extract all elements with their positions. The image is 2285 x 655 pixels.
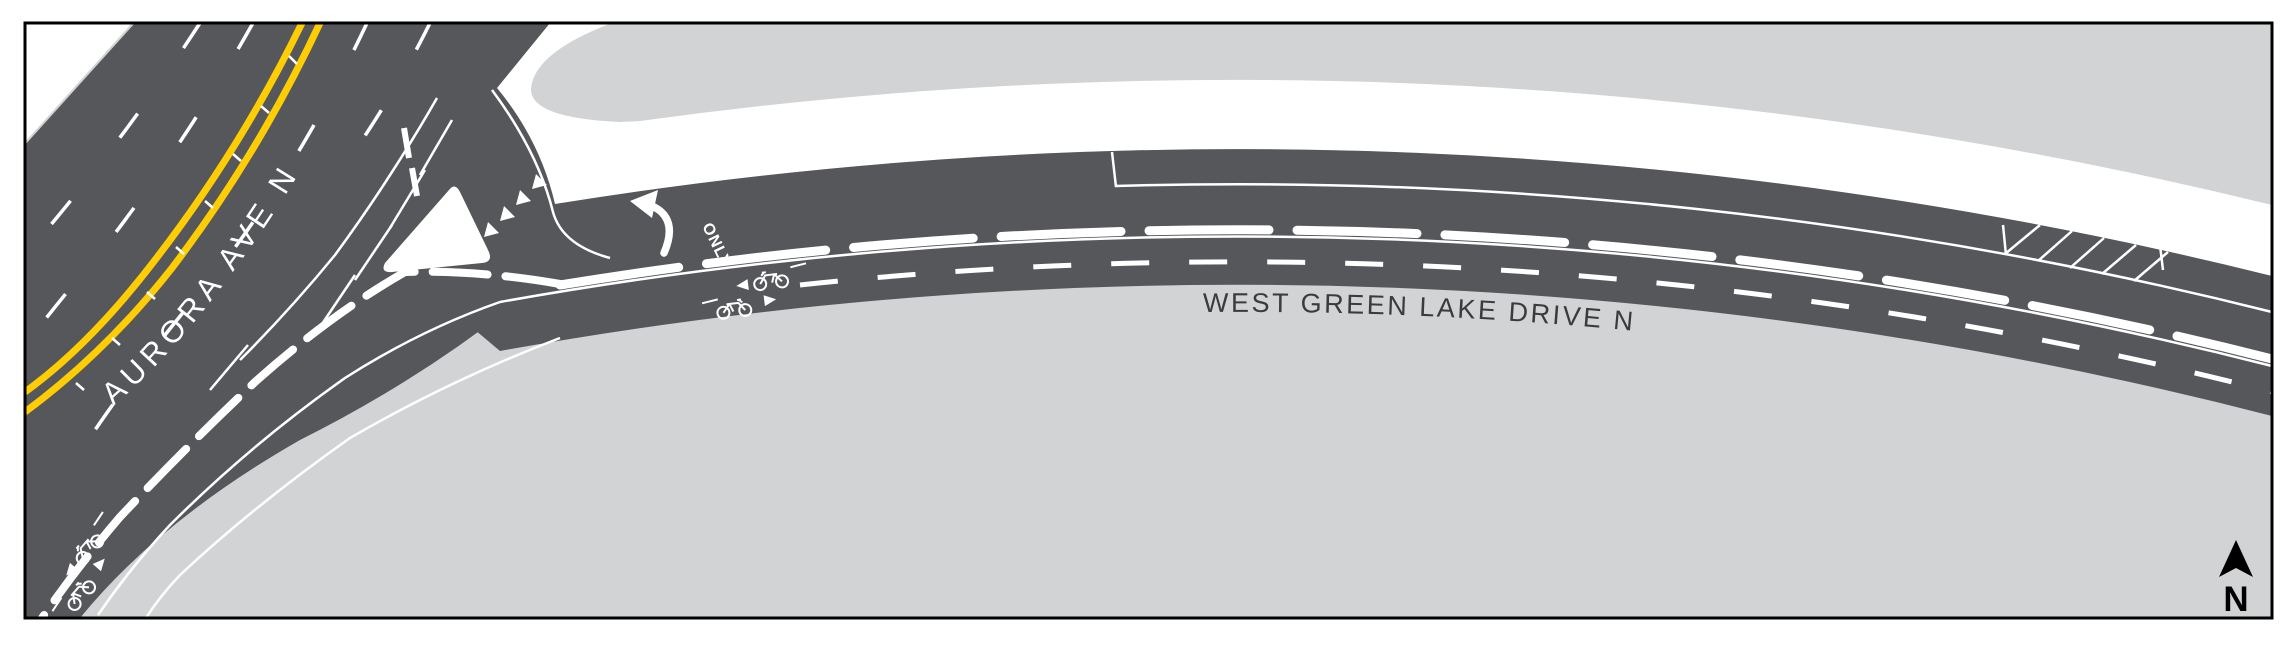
north-label: N: [2223, 580, 2248, 619]
channelization-plan-page: ONLY AURORA AVE N WEST GREEN LAKE DRIVE …: [0, 0, 2285, 655]
channelization-map: ONLY AURORA AVE N WEST GREEN LAKE DRIVE …: [0, 0, 2285, 655]
